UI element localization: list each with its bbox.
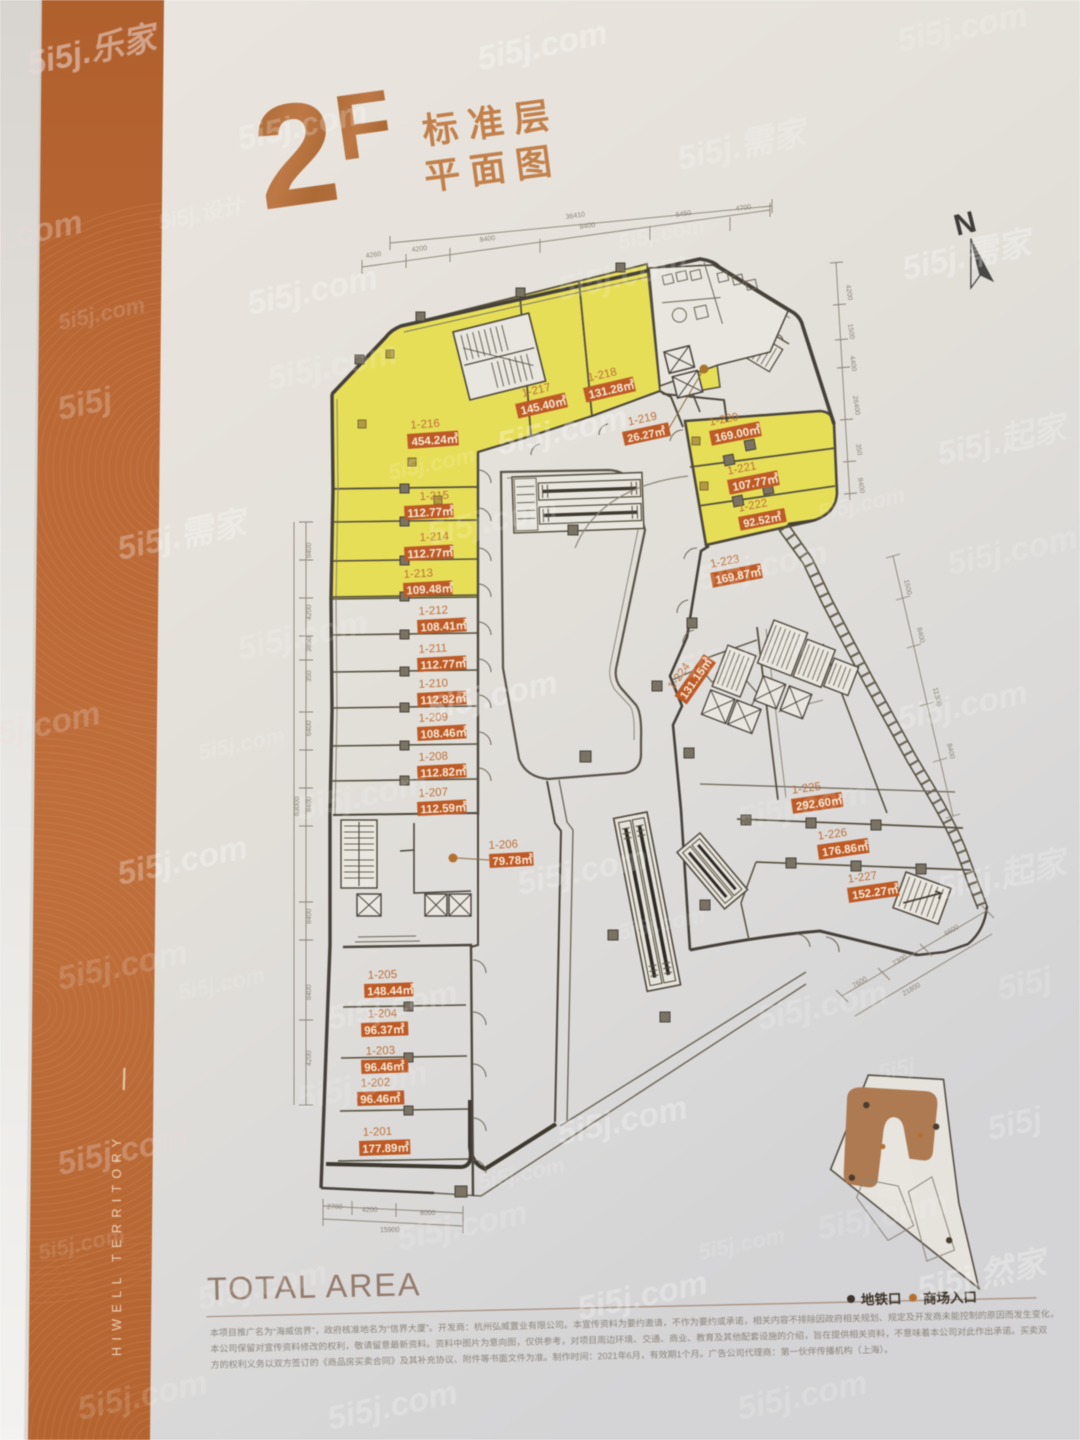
svg-text:6400: 6400 [306,720,313,736]
svg-text:1-213: 1-213 [403,567,433,581]
svg-text:4200: 4200 [362,1207,378,1214]
svg-text:1-205: 1-205 [368,969,398,982]
svg-text:地铁口: 地铁口 [861,1290,902,1307]
svg-text:1-216: 1-216 [410,418,440,432]
svg-text:1-206: 1-206 [488,838,518,852]
svg-text:1-211: 1-211 [418,642,447,655]
svg-text:8400: 8400 [306,908,313,924]
svg-text:1-203: 1-203 [366,1045,396,1058]
svg-text:8400: 8400 [306,542,313,558]
svg-text:1-208: 1-208 [418,750,448,764]
svg-text:8400: 8400 [306,984,313,1000]
svg-text:350: 350 [306,670,313,682]
svg-text:4200: 4200 [306,1050,313,1066]
svg-text:1-215: 1-215 [419,490,449,504]
svg-text:2700: 2700 [327,1204,343,1211]
svg-text:1-212: 1-212 [418,604,448,618]
svg-text:1-201: 1-201 [363,1126,393,1139]
